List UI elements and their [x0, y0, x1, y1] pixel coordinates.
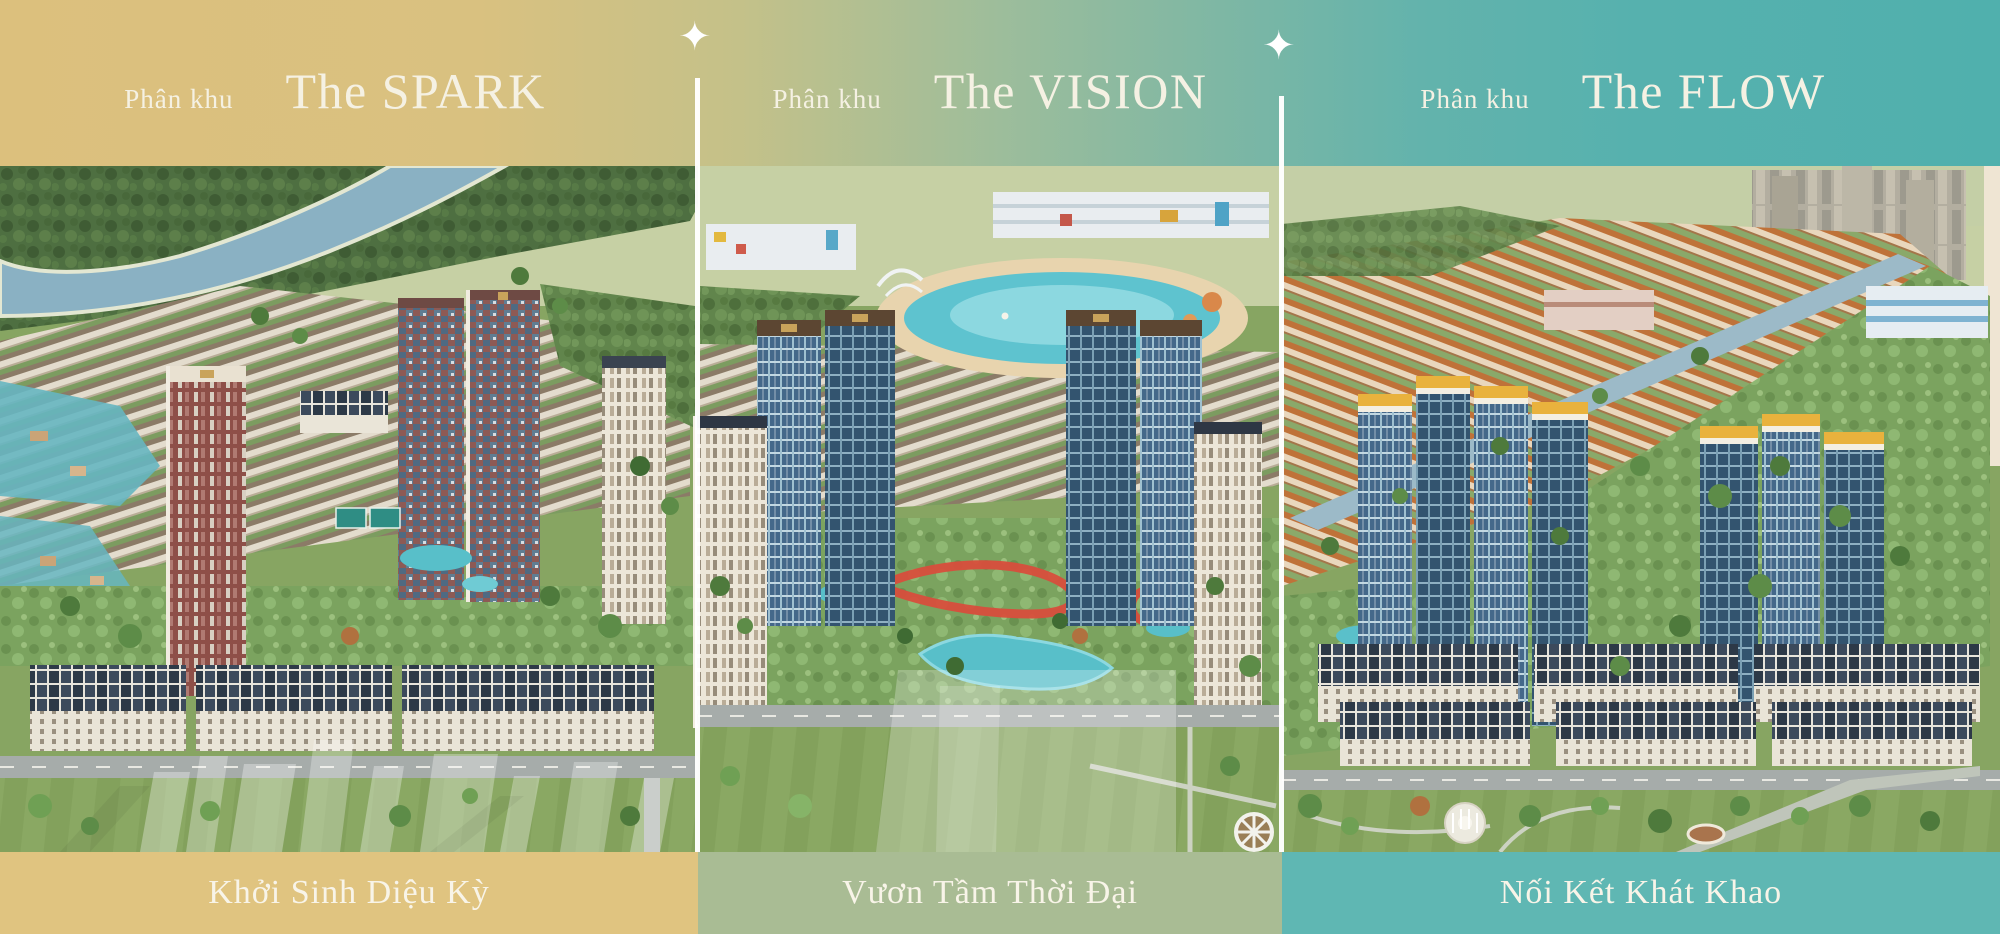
- footer-band: Khởi Sinh Diệu Kỳ Vươn Tầm Thời Đại Nối …: [0, 852, 2000, 934]
- footer-bar-spark: Khởi Sinh Diệu Kỳ: [0, 852, 698, 934]
- section-divider-line: [695, 78, 700, 852]
- pool: [400, 545, 472, 571]
- slogan-label: Vươn Tầm Thời Đại: [842, 874, 1138, 912]
- footer-bar-flow: Nối Kết Khát Khao: [1282, 852, 2000, 934]
- section-kicker: Phân khu: [772, 84, 881, 115]
- aerial-photo: [0, 166, 2000, 852]
- header-section-vision: Phân khu The VISION: [698, 0, 1282, 166]
- slogan-label: Nối Kết Khát Khao: [1500, 874, 1782, 912]
- header-section-flow: Phân khu The FLOW: [1264, 0, 1982, 166]
- masterplan-banner: Phân khu The SPARK Phân khu The VISION P…: [0, 0, 2000, 934]
- section-title: The FLOW: [1582, 62, 1826, 120]
- section-kicker: Phân khu: [124, 84, 233, 115]
- header-band: Phân khu The SPARK Phân khu The VISION P…: [0, 0, 2000, 166]
- section-title: The SPARK: [285, 62, 545, 120]
- section-kicker: Phân khu: [1420, 84, 1529, 115]
- section-divider-line: [1279, 96, 1284, 852]
- slogan-label: Khởi Sinh Diệu Kỳ: [208, 874, 489, 912]
- footer-bar-vision: Vươn Tầm Thời Đại: [698, 852, 1282, 934]
- tennis-courts: [336, 508, 366, 528]
- section-title: The VISION: [934, 62, 1208, 120]
- sparkle-icon: ✦: [678, 17, 712, 57]
- header-section-spark: Phân khu The SPARK: [0, 0, 684, 166]
- office-building: [1866, 286, 1988, 338]
- sparkle-icon: ✦: [1262, 26, 1296, 66]
